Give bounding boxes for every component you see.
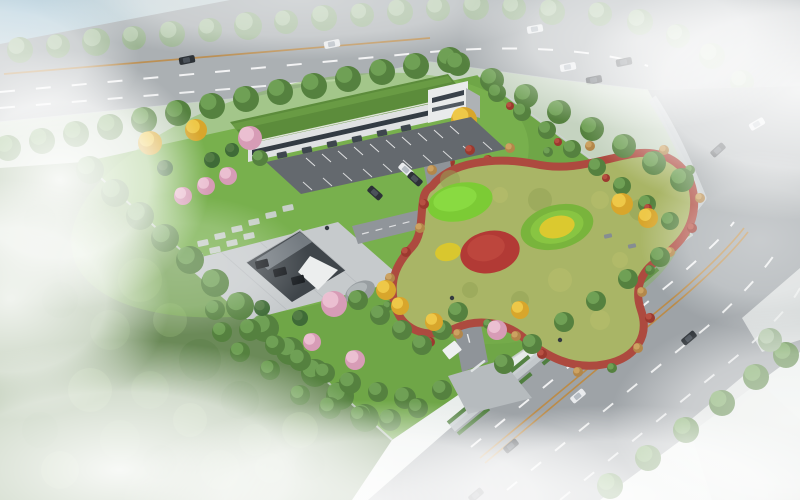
tree-highlight: [404, 54, 420, 70]
tree-highlight: [336, 67, 352, 83]
fog-patch: [50, 195, 310, 335]
tree: [505, 143, 515, 153]
tree-highlight: [587, 292, 599, 304]
tree: [511, 331, 521, 341]
tree: [633, 343, 643, 353]
tree-highlight: [433, 381, 445, 393]
tree: [453, 329, 463, 339]
aerial-rendering: [0, 0, 800, 500]
tree: [563, 140, 581, 158]
tree-highlight: [371, 306, 383, 318]
tree-highlight: [614, 178, 625, 189]
tree-highlight: [574, 367, 580, 373]
tree: [618, 269, 638, 289]
tree-highlight: [239, 127, 254, 142]
tree-highlight: [512, 302, 523, 313]
tree-highlight: [393, 321, 405, 333]
tree: [292, 310, 308, 326]
tree-highlight: [322, 292, 338, 308]
tree: [391, 297, 409, 315]
tree-highlight: [402, 247, 408, 253]
tree-highlight: [495, 355, 507, 367]
tree: [401, 247, 411, 257]
tree: [613, 177, 631, 195]
tree-highlight: [340, 373, 354, 387]
tree-highlight: [253, 150, 263, 160]
tree: [233, 86, 259, 112]
tree: [403, 53, 429, 79]
tree: [252, 150, 268, 166]
tree: [573, 367, 583, 377]
tree: [554, 138, 562, 146]
tree: [376, 280, 396, 300]
tree-highlight: [506, 143, 512, 149]
tree-highlight: [386, 273, 392, 279]
tree-highlight: [226, 143, 235, 152]
tree: [415, 223, 425, 233]
tree: [588, 158, 606, 176]
tree: [522, 334, 542, 354]
person: [558, 338, 562, 342]
tree-highlight: [200, 94, 216, 110]
tree-highlight: [488, 321, 500, 333]
garden-part: [462, 282, 478, 298]
tree-highlight: [454, 329, 460, 335]
tree-highlight: [555, 313, 567, 325]
tree-highlight: [395, 388, 409, 402]
tree: [448, 302, 468, 322]
tree-highlight: [506, 102, 511, 107]
tree: [265, 335, 285, 355]
tree: [427, 165, 437, 175]
garden-part: [591, 191, 609, 209]
tree-highlight: [370, 60, 386, 76]
tree: [602, 174, 610, 182]
tree-highlight: [266, 336, 278, 348]
tree-highlight: [511, 331, 517, 337]
garden-part: [590, 310, 610, 330]
tree: [370, 305, 390, 325]
tree: [465, 145, 475, 155]
tree: [369, 59, 395, 85]
tree-highlight: [426, 314, 437, 325]
tree-highlight: [564, 141, 575, 152]
tree-highlight: [602, 174, 607, 179]
tree-highlight: [619, 270, 631, 282]
tree: [392, 320, 412, 340]
tree: [335, 66, 361, 92]
tree: [611, 193, 633, 215]
tree: [321, 291, 347, 317]
tree: [554, 312, 574, 332]
tree: [199, 93, 225, 119]
tree: [511, 301, 529, 319]
tree-highlight: [290, 350, 304, 364]
tree: [301, 73, 327, 99]
tree-highlight: [634, 343, 640, 349]
person: [325, 226, 329, 230]
tree-highlight: [466, 145, 472, 151]
tree-highlight: [447, 53, 462, 68]
tree: [339, 372, 361, 394]
tree-highlight: [539, 122, 550, 133]
tree-highlight: [416, 223, 422, 229]
tree: [538, 121, 556, 139]
tree: [586, 291, 606, 311]
tree-highlight: [428, 165, 434, 171]
garden-part: [548, 268, 572, 292]
tree: [607, 363, 617, 373]
tree-highlight: [316, 364, 328, 376]
tree: [267, 79, 293, 105]
tree-highlight: [638, 287, 644, 293]
tree-highlight: [268, 80, 284, 96]
scene-canvas: [0, 0, 800, 500]
tree-highlight: [304, 334, 315, 345]
tree: [345, 350, 365, 370]
tree: [412, 335, 432, 355]
tree-highlight: [612, 194, 626, 208]
tree-highlight: [449, 303, 461, 315]
garden-part: [612, 252, 628, 268]
tree: [368, 382, 388, 402]
tree: [348, 290, 368, 310]
tree-highlight: [646, 313, 652, 319]
tree-highlight: [369, 383, 381, 395]
tree-highlight: [220, 168, 231, 179]
tree: [219, 167, 237, 185]
tree-highlight: [608, 363, 614, 369]
tree-highlight: [392, 298, 403, 309]
tree-highlight: [302, 74, 318, 90]
tree: [543, 147, 553, 157]
tree: [645, 313, 655, 323]
tree-highlight: [349, 291, 361, 303]
garden-part: [492, 187, 508, 203]
tree: [432, 380, 452, 400]
tree-highlight: [420, 199, 426, 205]
tree: [637, 287, 647, 297]
tree: [419, 199, 429, 209]
tree: [303, 333, 321, 351]
tree-highlight: [234, 87, 250, 103]
tree: [487, 320, 507, 340]
tree: [425, 313, 443, 331]
tree-highlight: [544, 147, 550, 153]
tree-highlight: [413, 336, 425, 348]
tree-highlight: [589, 159, 600, 170]
tree-highlight: [554, 138, 559, 143]
tree-highlight: [346, 351, 358, 363]
tree: [225, 143, 239, 157]
tree-highlight: [377, 281, 389, 293]
person: [450, 296, 454, 300]
tree-highlight: [523, 335, 535, 347]
tree: [238, 126, 262, 150]
tree: [494, 354, 514, 374]
tree-highlight: [293, 310, 303, 320]
